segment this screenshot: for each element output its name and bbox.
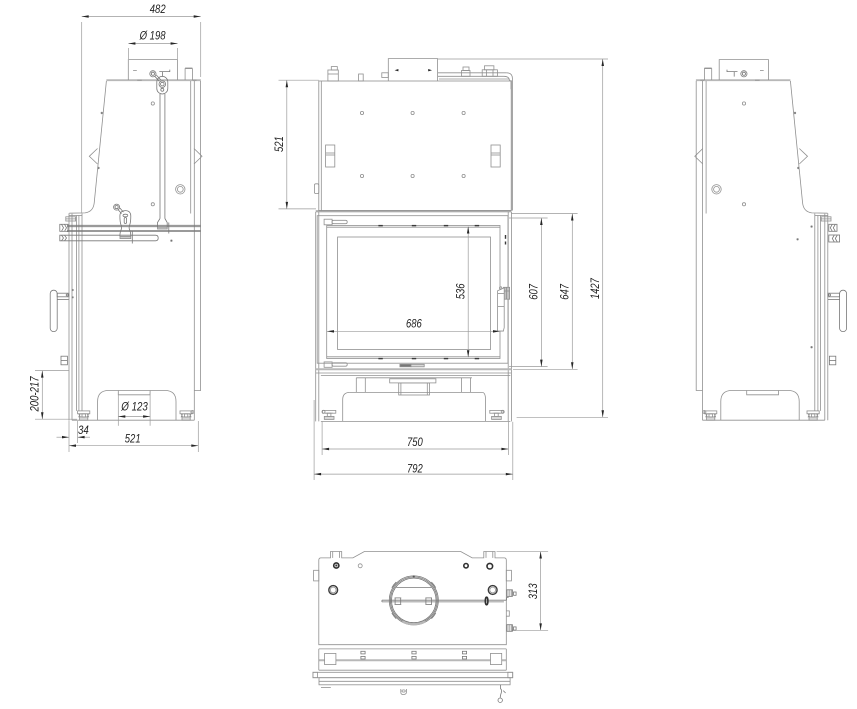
svg-text:536: 536 [453, 283, 467, 299]
svg-text:647: 647 [558, 283, 572, 300]
svg-text:34: 34 [78, 423, 89, 437]
svg-text:686: 686 [406, 317, 422, 331]
svg-text:200-217: 200-217 [28, 375, 42, 412]
svg-text:607: 607 [527, 283, 541, 300]
svg-text:1427: 1427 [588, 277, 602, 299]
svg-text:521: 521 [125, 431, 141, 445]
svg-text:792: 792 [407, 462, 423, 476]
svg-text:Ø 123: Ø 123 [120, 400, 148, 414]
svg-text:313: 313 [526, 583, 540, 599]
svg-text:750: 750 [407, 435, 423, 449]
svg-text:521: 521 [272, 136, 286, 152]
svg-text:482: 482 [150, 2, 166, 16]
svg-text:Ø 198: Ø 198 [139, 29, 166, 43]
